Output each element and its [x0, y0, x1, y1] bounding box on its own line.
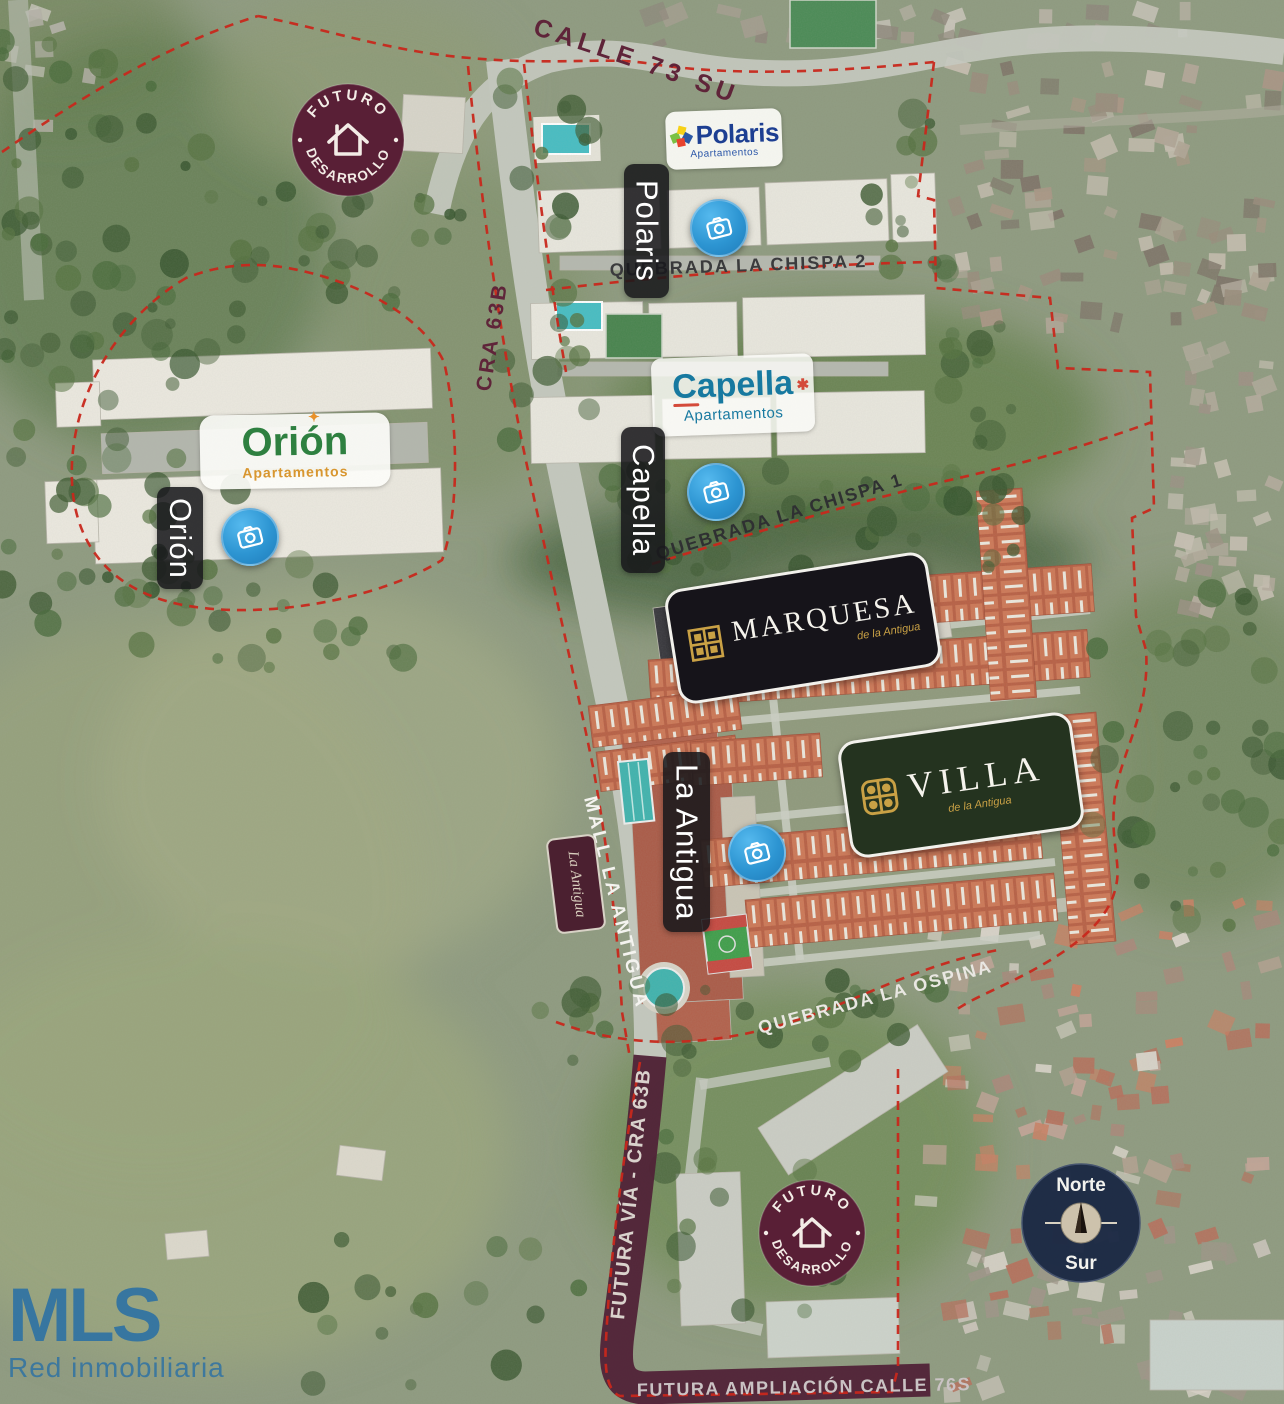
camera-icon	[739, 835, 775, 871]
future-development-badge-north: FUTURO DESARROLLO	[292, 84, 404, 196]
capella-logo-board: Capella ✱ Apartamentos	[651, 353, 816, 437]
camera-marker-capella[interactable]	[687, 463, 745, 521]
mls-tagline: Red inmobiliaria	[8, 1352, 225, 1384]
gold-ornament-icon	[685, 621, 726, 666]
marker-label-polaris[interactable]: Polaris	[624, 164, 669, 298]
polaris-subtitle: Apartamentos	[690, 147, 759, 160]
orion-logo-board: Orión ✦ Apartamentos	[199, 412, 390, 489]
camera-icon	[698, 474, 734, 510]
polaris-logo-board: Polaris Apartamentos	[665, 108, 783, 170]
camera-icon	[701, 210, 737, 246]
capella-name: Capella ✱	[672, 365, 794, 403]
capella-subtitle: Apartamentos	[684, 404, 784, 424]
compass-south-label: Sur	[1065, 1253, 1097, 1274]
mls-brand-name: MLS	[8, 1282, 225, 1350]
compass-north-label: Norte	[1056, 1175, 1106, 1196]
mls-logo: MLS Red inmobiliaria	[8, 1282, 225, 1384]
orion-name: Orión ✦	[241, 421, 348, 463]
orion-star-icon: ✦	[308, 410, 320, 424]
marker-label-la-antigua[interactable]: La Antigua	[663, 752, 710, 932]
camera-marker-orion[interactable]	[221, 508, 279, 566]
polaris-logo-icon	[668, 124, 693, 149]
marker-label-orion[interactable]: Orión	[157, 487, 203, 589]
camera-icon	[232, 519, 268, 555]
polaris-name: Polaris	[695, 117, 779, 151]
marquesa-name: MARQUESA	[730, 587, 920, 649]
orion-subtitle: Apartamentos	[242, 463, 348, 481]
marker-label-capella[interactable]: Capella	[621, 427, 665, 573]
gold-ornament-icon	[858, 775, 901, 818]
future-development-badge-south: FUTURO DESARROLLO	[759, 1180, 865, 1286]
camera-marker-la-antigua[interactable]	[728, 824, 786, 882]
capella-flower-icon: ✱	[796, 377, 809, 392]
camera-marker-polaris[interactable]	[690, 199, 748, 257]
compass: Norte Sur	[1022, 1164, 1140, 1282]
masterplan-aerial-map: CALLE 73 SUR CRA 63B QUEBRADA LA CHISPA …	[0, 0, 1284, 1404]
